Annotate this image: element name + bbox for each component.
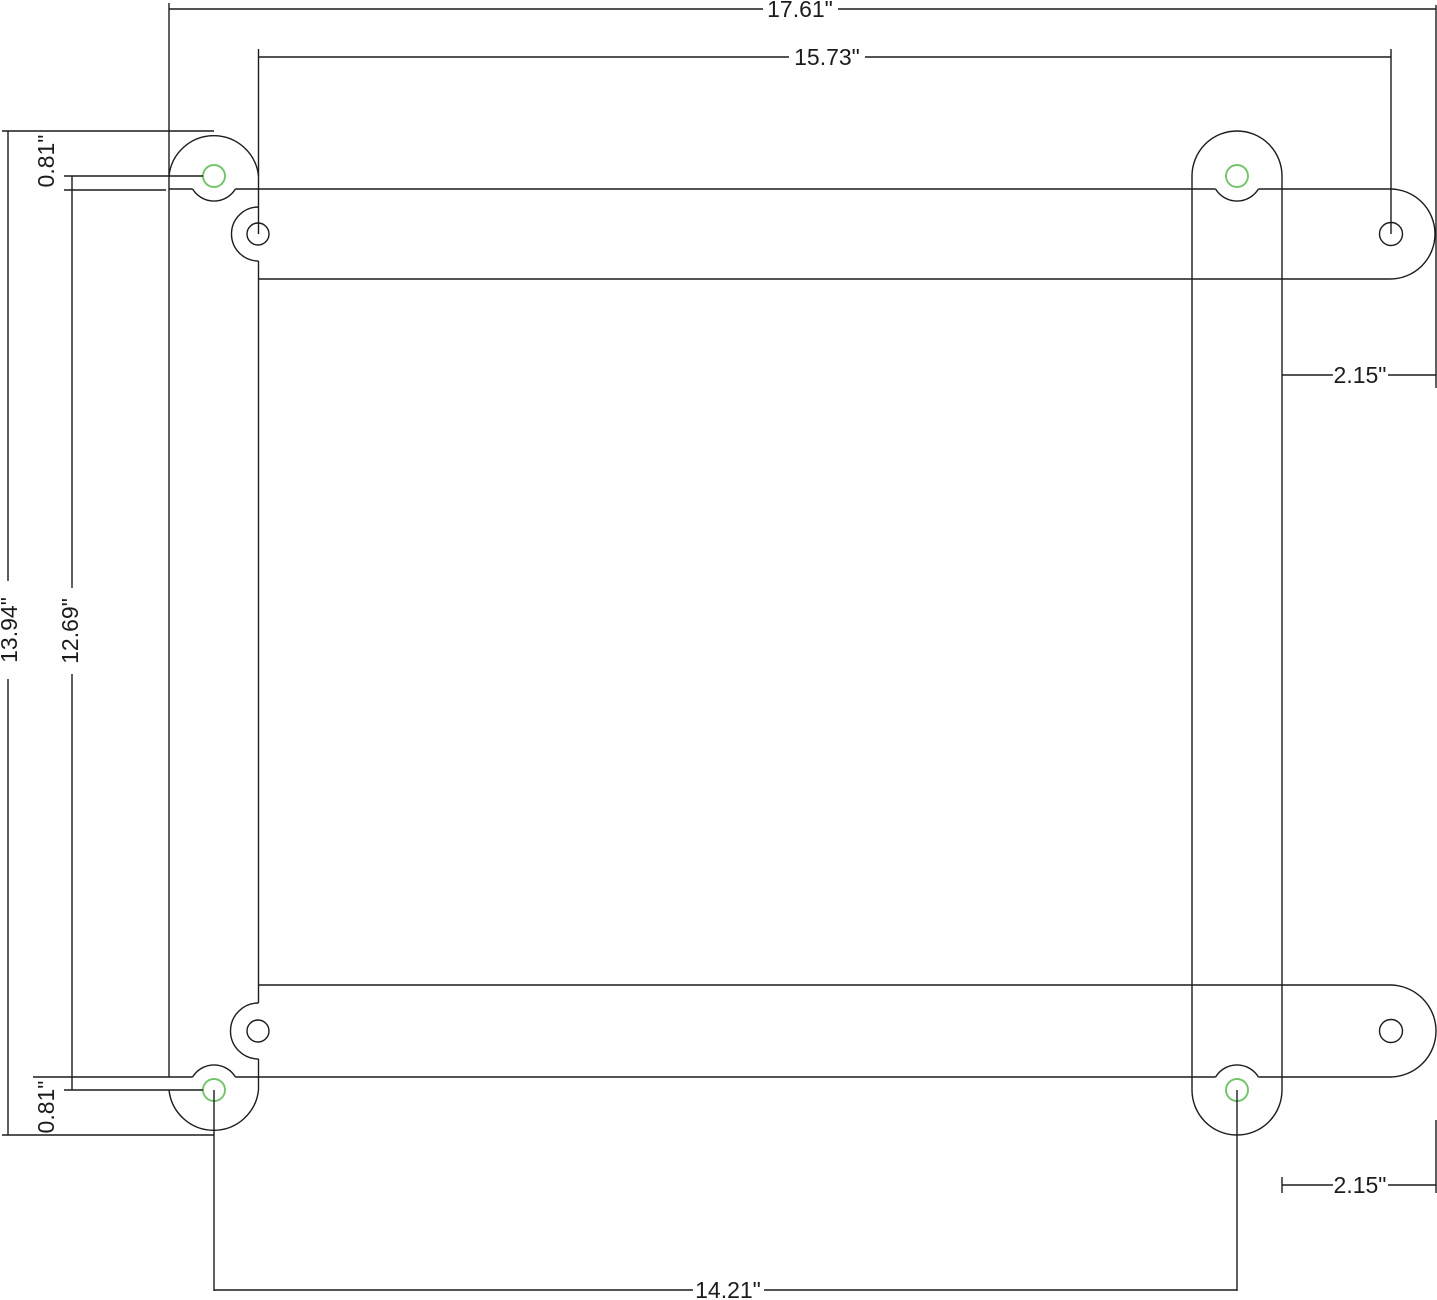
screw-hole-stadium-bottom-right bbox=[1380, 1020, 1403, 1043]
pilot-hole-top-right bbox=[1226, 165, 1248, 187]
dim-top-ear-label: 0.81" bbox=[33, 135, 59, 188]
ear-notch-top-left bbox=[193, 189, 236, 201]
dim-lower-hole-span: 14.21" bbox=[214, 1090, 1237, 1300]
frame-outline bbox=[33, 3, 1390, 1090]
ear-arch-top-left bbox=[169, 136, 259, 176]
dim-overall-height: 13.94" bbox=[0, 131, 214, 1135]
dim-overall-width-label: 17.61" bbox=[767, 0, 833, 22]
dim-left-hole-span: 12.69" bbox=[57, 176, 203, 1090]
dim-overall-height-label: 13.94" bbox=[0, 597, 22, 663]
dim-right-tab-bottom: 2.15" bbox=[1282, 1120, 1436, 1198]
stadium-cap-bottom-right bbox=[1390, 985, 1436, 1077]
dim-right-tab-bottom-label: 2.15" bbox=[1334, 1172, 1387, 1198]
stadium-tabs bbox=[1390, 189, 1436, 1077]
cad-drawing-canvas: 17.61" 15.73" 13.94" 12.69" 0.81" 0.81" … bbox=[0, 0, 1437, 1300]
pilot-hole-top-left bbox=[203, 165, 225, 187]
dim-top-ear: 0.81" bbox=[33, 135, 166, 190]
inner-bosses bbox=[231, 207, 259, 1059]
ear-notch-top-right bbox=[1216, 189, 1259, 201]
ear-notch-bottom-left bbox=[193, 1065, 236, 1077]
dim-upper-hole-span: 15.73" bbox=[259, 44, 1392, 234]
ear-arch-top-right bbox=[1192, 131, 1282, 176]
screw-hole-inner-bottom-left bbox=[247, 1020, 269, 1042]
boss-arc-bottom-left bbox=[231, 1003, 259, 1059]
dim-left-hole-span-label: 12.69" bbox=[57, 598, 83, 664]
dim-bottom-ear: 0.81" bbox=[33, 1081, 59, 1134]
stadium-cap-top-right bbox=[1390, 189, 1435, 279]
dim-bottom-ear-label: 0.81" bbox=[33, 1081, 59, 1134]
dim-upper-hole-span-label: 15.73" bbox=[794, 44, 860, 70]
holes bbox=[203, 165, 1403, 1101]
dim-right-tab-top-label: 2.15" bbox=[1334, 362, 1387, 388]
ear-notch-bottom-right bbox=[1216, 1065, 1259, 1077]
dim-right-tab-top: 2.15" bbox=[1282, 362, 1436, 388]
dim-lower-hole-span-label: 14.21" bbox=[695, 1277, 761, 1300]
boss-arc-top-left bbox=[232, 207, 259, 261]
